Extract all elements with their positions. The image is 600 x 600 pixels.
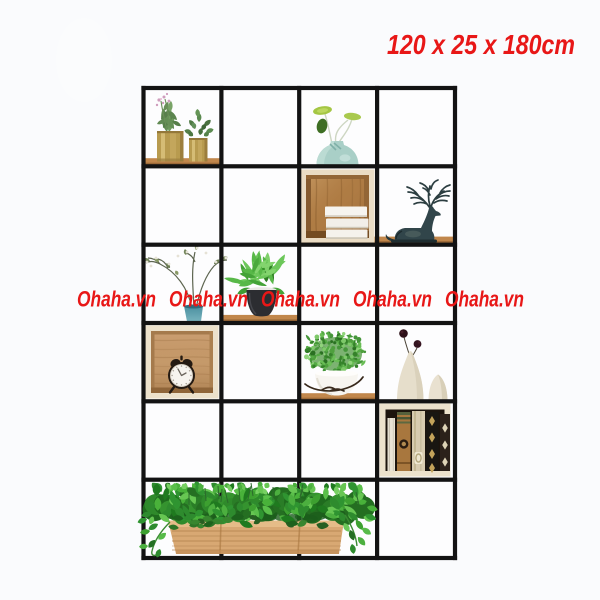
svg-text:Ohaha.vn: Ohaha.vn	[169, 287, 248, 312]
svg-text:Ohaha.vn: Ohaha.vn	[77, 287, 156, 312]
svg-text:Ohaha.vn: Ohaha.vn	[353, 287, 432, 312]
svg-text:Ohaha.vn: Ohaha.vn	[261, 287, 340, 312]
svg-text:Ohaha.vn: Ohaha.vn	[445, 287, 524, 312]
svg-text:120 x 25 x 180cm: 120 x 25 x 180cm	[387, 29, 575, 60]
